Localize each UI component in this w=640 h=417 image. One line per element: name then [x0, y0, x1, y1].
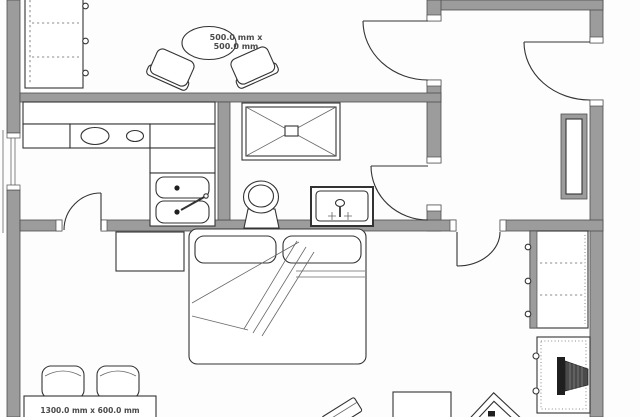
door-swing-arc: [371, 166, 428, 220]
wardrobe-knob: [525, 278, 531, 284]
door-swing-arc: [524, 42, 590, 100]
door-swing-arc: [64, 193, 101, 230]
bathroom: [242, 103, 373, 228]
door-jamb: [427, 157, 441, 163]
faucet-handle: [204, 194, 208, 198]
desk: [533, 337, 590, 413]
wardrobe-knob: [83, 38, 89, 44]
sink-basin-bottom: [156, 201, 209, 223]
desk-knob: [533, 353, 539, 359]
door-jamb: [56, 220, 62, 231]
door-swing-arc: [457, 232, 500, 266]
kitchen-counter-left: [23, 124, 70, 148]
dining-table-dimension-line2: 500.0 mm: [214, 42, 259, 51]
pillow: [195, 236, 276, 263]
shower-tray: [242, 103, 340, 160]
door-jamb: [590, 100, 603, 106]
wardrobe-body: [530, 231, 588, 328]
wall-interior-top: [20, 93, 441, 102]
drain-icon: [174, 209, 179, 214]
washbasin: [311, 187, 373, 226]
kitchen-counter-top: [23, 102, 215, 124]
tilted-item: [322, 397, 363, 417]
door-jamb: [500, 220, 506, 231]
drain-icon: [174, 185, 179, 190]
wall-middle-3: [500, 220, 603, 231]
door-dining: [363, 21, 428, 80]
double-bed: [189, 229, 366, 364]
kitchen: [23, 102, 215, 226]
radiator-core: [566, 119, 582, 194]
wall-left-lower: [7, 190, 20, 417]
kitchen-counter-right-mid: [150, 148, 215, 173]
door-jamb: [450, 220, 456, 231]
nightstand: [116, 232, 184, 271]
chair-right: [227, 44, 279, 89]
wall-right-lower: [590, 100, 603, 417]
bench-table-dimension: 1300.0 mm x 600.0 mm: [40, 406, 139, 415]
desk-chair-dot: [488, 411, 495, 417]
wardrobe-top-left: [25, 0, 88, 88]
toilet: [244, 181, 280, 228]
sink-basin-top: [156, 177, 209, 198]
kitchen-sink: [150, 173, 215, 226]
wardrobe-knob: [83, 3, 89, 9]
burner-small-icon: [127, 131, 144, 142]
faucet-icon: [336, 200, 345, 207]
kitchen-counter-right-upper: [150, 124, 215, 148]
desk-knob: [533, 388, 539, 394]
stool-right: [97, 366, 139, 399]
radiator: [561, 114, 587, 199]
door-jamb: [427, 15, 441, 21]
tilted-item-body: [322, 397, 363, 417]
wardrobe-knob: [525, 244, 531, 250]
door-jamb: [427, 205, 441, 211]
side-table: [393, 392, 451, 417]
door-jamb: [590, 37, 603, 43]
monitor-screen: [557, 357, 565, 395]
burner-large-icon: [81, 128, 109, 145]
door-kitchen: [64, 193, 101, 230]
desk-chair: [457, 393, 533, 417]
stool-left: [42, 366, 84, 399]
window-jamb: [7, 185, 20, 190]
wall-kitchen-bath-divider: [218, 102, 230, 220]
door-jamb: [427, 80, 441, 86]
window-jamb: [7, 133, 20, 138]
wall-left-upper: [7, 0, 20, 133]
wardrobe-right: [525, 231, 588, 328]
wardrobe-body: [25, 0, 83, 88]
wardrobe-knob: [83, 70, 89, 76]
floor-plan-drawing: 500.0 mm x 500.0 mm 1300.0 mm x 600.0 mm: [0, 0, 640, 417]
door-entrance: [524, 42, 590, 100]
stove: [70, 124, 150, 148]
living-bedroom: [24, 229, 590, 417]
wall-top-hall: [435, 0, 603, 10]
hallway: [561, 114, 587, 199]
door-bathroom: [371, 166, 428, 220]
pillow: [283, 236, 361, 263]
wall-vertical-a2: [427, 80, 441, 163]
floor-plan: 500.0 mm x 500.0 mm 1300.0 mm x 600.0 mm: [0, 0, 640, 417]
wardrobe-knob: [525, 311, 531, 317]
door-swing-arc: [363, 21, 428, 80]
dining-table-dimension-line1: 500.0 mm x: [210, 33, 264, 42]
door-living-room: [457, 232, 500, 266]
door-jamb: [101, 220, 107, 231]
shower-drain-icon: [285, 126, 298, 136]
